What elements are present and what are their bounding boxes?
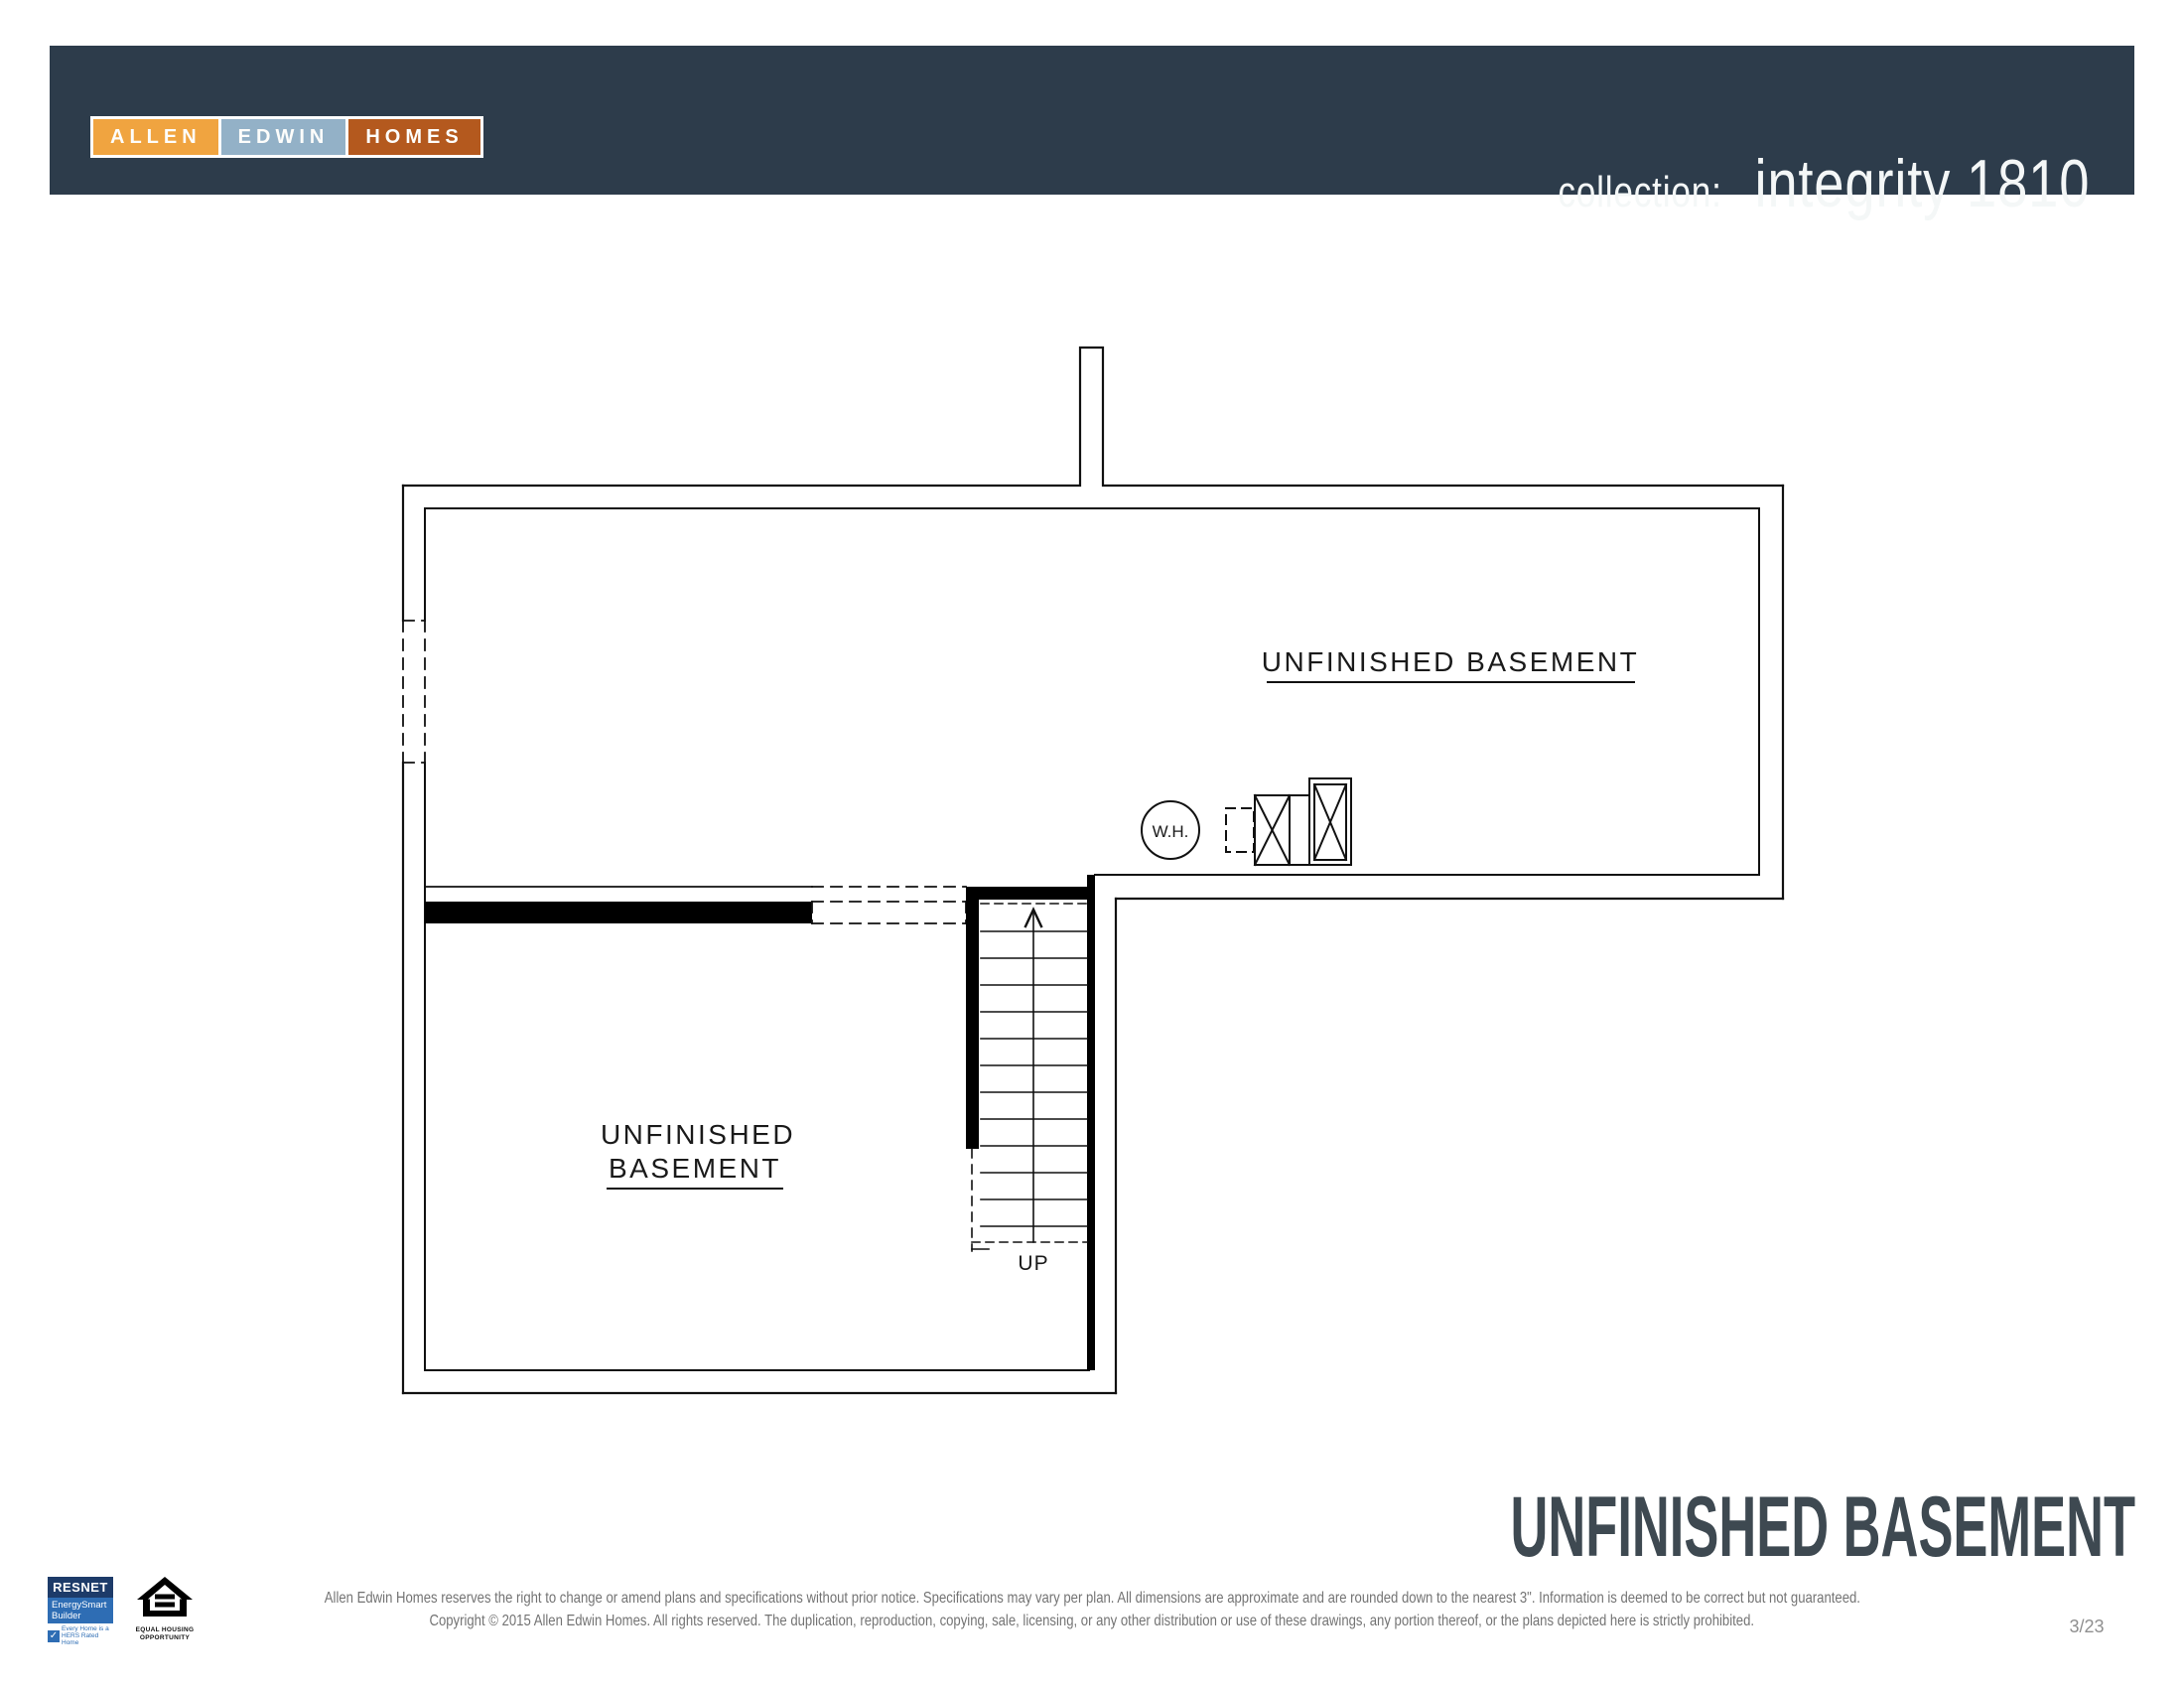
furnace xyxy=(1226,778,1351,865)
floor-plan-svg: UP W.H. UNFINISHED BASEMENT UNFINISHED B… xyxy=(0,0,2184,1688)
stair-left-wall xyxy=(966,900,979,1149)
stairwell: UP xyxy=(966,875,1095,1370)
furnace-connector xyxy=(1290,795,1309,865)
resnet-brand: RESNET xyxy=(48,1577,113,1598)
main-area-label: UNFINISHED BASEMENT xyxy=(1262,646,1639,677)
door-opening xyxy=(812,902,966,923)
sheet-title-text: UNFINISHED BASEMENT xyxy=(1510,1484,2135,1570)
furnace-dashed-pad xyxy=(1226,808,1254,852)
resnet-program-line2: Builder xyxy=(52,1611,113,1621)
equal-housing-house-icon xyxy=(135,1577,195,1620)
page: { "header": { "logo": { "word1": "ALLEN"… xyxy=(0,0,2184,1688)
partition-wall xyxy=(425,887,966,923)
disclaimer-line1: Allen Edwin Homes reserves the right to … xyxy=(149,1587,2035,1610)
resnet-program: EnergySmart Builder xyxy=(48,1598,113,1623)
equal-housing-line1: EQUAL HOUSING xyxy=(133,1626,197,1634)
water-heater: W.H. xyxy=(1142,801,1199,859)
disclaimer-line2: Copyright © 2015 Allen Edwin Homes. All … xyxy=(149,1610,2035,1632)
lower-area-label-line2: BASEMENT xyxy=(609,1153,781,1184)
stair-right-wall xyxy=(1087,875,1095,1370)
page-number: 3/23 xyxy=(2037,1617,2136,1637)
window-opening xyxy=(403,621,425,763)
resnet-tagline: ✓ Every Home is a HERS Rated Home xyxy=(48,1625,113,1646)
stair-top-wall xyxy=(966,887,1087,900)
lower-area-label-line1: UNFINISHED xyxy=(601,1119,795,1150)
resnet-tagline-line1: Every Home is a xyxy=(62,1625,113,1632)
up-arrow xyxy=(1025,910,1041,1242)
water-heater-label: W.H. xyxy=(1153,822,1189,841)
stair-treads xyxy=(972,904,1087,1242)
disclaimer: Allen Edwin Homes reserves the right to … xyxy=(149,1587,2035,1632)
resnet-tagline-line2: HERS Rated Home xyxy=(62,1632,113,1646)
resnet-program-line1: EnergySmart xyxy=(52,1600,113,1611)
up-label: UP xyxy=(1018,1252,1048,1275)
checkmark-icon: ✓ xyxy=(48,1630,60,1642)
sheet-title: UNFINISHED BASEMENT xyxy=(1111,1484,2135,1570)
equal-housing-logo: EQUAL HOUSING OPPORTUNITY xyxy=(133,1577,197,1641)
equal-housing-line2: OPPORTUNITY xyxy=(133,1634,197,1642)
resnet-logo: RESNET EnergySmart Builder ✓ Every Home … xyxy=(48,1577,113,1646)
